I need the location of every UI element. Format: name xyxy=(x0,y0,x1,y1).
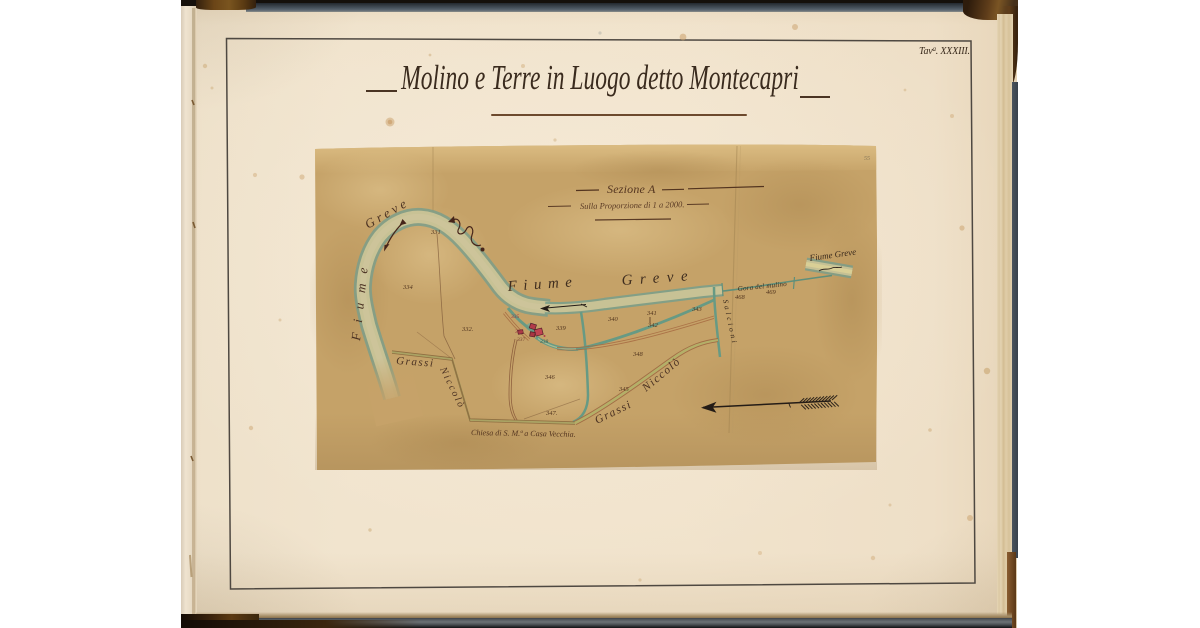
svg-text:348: 348 xyxy=(632,351,644,358)
svg-text:337: 337 xyxy=(516,337,526,343)
svg-text:342: 342 xyxy=(647,322,659,329)
svg-text:469: 469 xyxy=(766,289,777,296)
svg-text:336: 336 xyxy=(514,329,524,335)
svg-text:Sezione A: Sezione A xyxy=(607,182,656,196)
svg-text:343: 343 xyxy=(691,306,703,313)
svg-text:468: 468 xyxy=(735,294,746,301)
svg-text:346: 346 xyxy=(544,374,556,381)
svg-text:Chiesa di S. M.ª a Casa Vecchi: Chiesa di S. M.ª a Casa Vecchia. xyxy=(471,428,576,439)
svg-text:55: 55 xyxy=(864,156,870,162)
svg-text:332.: 332. xyxy=(461,326,474,333)
svg-text:339: 339 xyxy=(555,325,567,332)
svg-text:Sulla Proporzione di 1 a 2000.: Sulla Proporzione di 1 a 2000. xyxy=(580,199,685,211)
svg-text:334: 334 xyxy=(402,284,414,291)
svg-text:331: 331 xyxy=(430,229,441,236)
svg-text:338: 338 xyxy=(539,339,549,345)
svg-text:345: 345 xyxy=(618,386,630,393)
svg-text:341: 341 xyxy=(646,310,657,317)
svg-text:340: 340 xyxy=(607,316,619,323)
svg-text:335: 335 xyxy=(510,314,520,320)
svg-text:347.: 347. xyxy=(545,410,558,417)
